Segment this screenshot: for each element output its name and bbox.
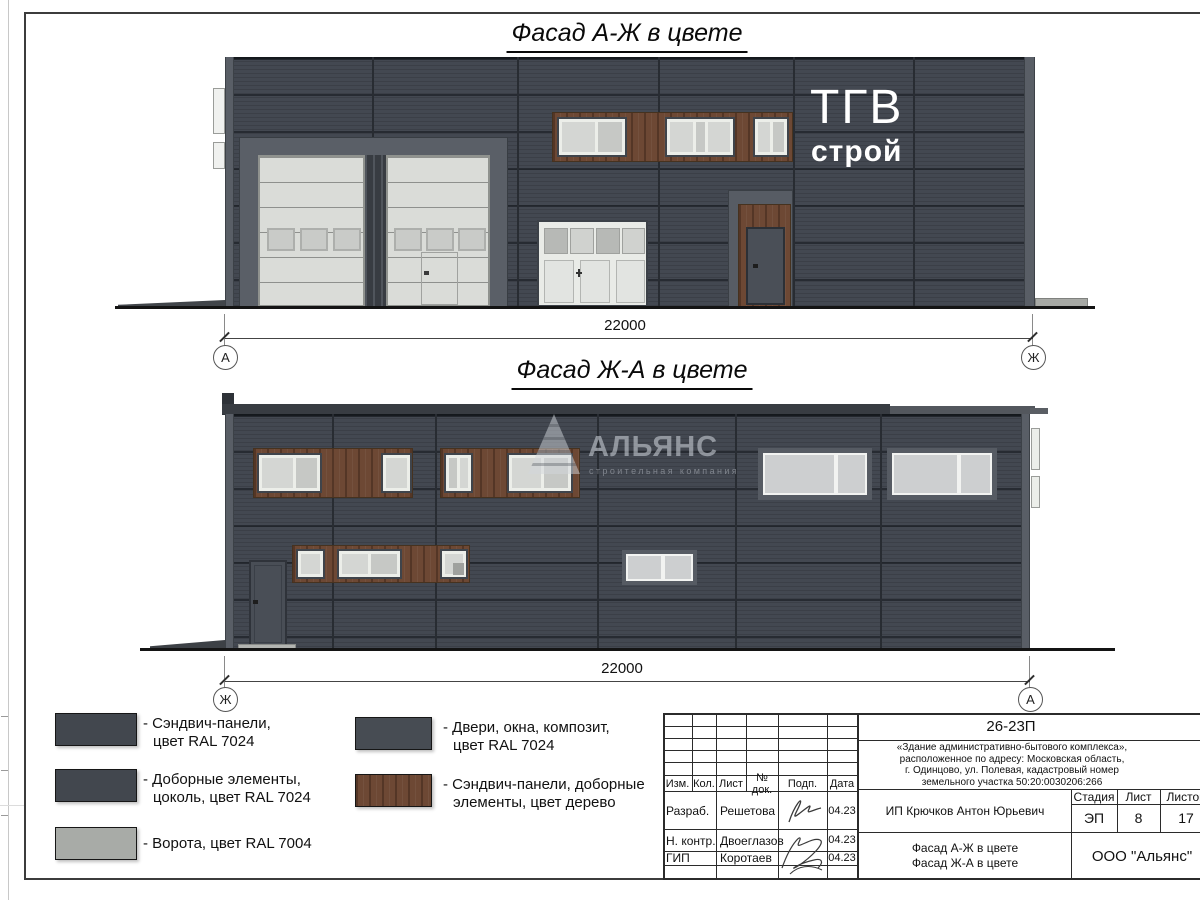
gate-window [394, 228, 422, 251]
legend-swatch-doors [355, 717, 432, 750]
col-header-kol: Кол. [692, 777, 716, 790]
parapet-cap-dark [222, 404, 890, 414]
row-role: Разраб. [666, 804, 709, 818]
panel-seam [880, 414, 882, 650]
titleblock-line [663, 750, 857, 751]
gate-wicket-door [421, 252, 458, 305]
window [665, 117, 735, 157]
legend-label: - Сэндвич-панели, цвет RAL 7024 [143, 715, 271, 751]
margin-divider [0, 805, 24, 806]
dimension-label: 22000 [601, 660, 643, 677]
titleblock-line [663, 762, 857, 763]
legend-swatch-gates [55, 827, 137, 860]
col-header-podp: Подп. [778, 777, 827, 790]
door-handle [253, 600, 258, 604]
axis-bubble-left: А [213, 345, 238, 370]
storefront-pane [616, 260, 645, 303]
window [557, 117, 627, 157]
gate-window [267, 228, 295, 251]
legend-line: цоколь, цвет RAL 7024 [143, 789, 311, 807]
gate-window [300, 228, 328, 251]
window [440, 549, 468, 579]
drawing-title-line: Фасад Ж-А в цвете [912, 856, 1018, 871]
sectional-gate-right [386, 155, 490, 307]
watermark-company: АЛЬЯНС [588, 431, 718, 464]
legend-swatch-sandwich [55, 713, 137, 746]
panel-seam [435, 414, 437, 650]
glass-pane [562, 122, 595, 152]
facade1-left-corner-trim [225, 57, 234, 307]
gate-door-handle [424, 271, 429, 275]
col-header-izm: Изм. [663, 777, 692, 790]
legend-line: элементы, цвет дерево [443, 794, 645, 812]
legend-line: - Доборные элементы, [143, 771, 311, 789]
row-role: ГИП [666, 851, 690, 865]
legend-label: - Ворота, цвет RAL 7004 [143, 835, 312, 853]
description-line: «Здание административно-бытового комплек… [897, 742, 1127, 754]
glass-pane [342, 554, 368, 574]
window [257, 453, 322, 493]
col-header-list: Лист [716, 777, 746, 790]
glass-pane [773, 122, 785, 152]
client-name: ИП Крючков Антон Юрьевич [859, 789, 1071, 832]
storefront-pane [544, 260, 574, 303]
description-line: земельного участка 50:20:0030206:266 [922, 777, 1103, 789]
col-header-data: Дата [827, 777, 857, 790]
window [753, 117, 789, 157]
glass-pane [460, 458, 468, 488]
facade2-right-corner-trim [1021, 414, 1030, 650]
building-logo-line1: ТГВ [810, 84, 903, 132]
axis-bubble-left: Ж [213, 687, 238, 712]
row-role: Н. контр. [666, 834, 716, 848]
ground-line [115, 306, 1095, 309]
row-date: 04.23 [827, 851, 857, 864]
downspout-box [1031, 476, 1040, 508]
row-name: Двоеглазов [720, 834, 784, 848]
stage-label: Стадия [1071, 790, 1117, 803]
window [444, 453, 473, 493]
glass-pane [838, 455, 865, 493]
panel-seam [658, 57, 660, 307]
downspout-box [213, 142, 225, 169]
stage-value: ЭП [1071, 805, 1117, 831]
facade2-door [249, 560, 287, 648]
window [296, 549, 325, 579]
legend-label: - Доборные элементы, цоколь, цвет RAL 70… [143, 771, 311, 807]
signature-reshetova [781, 794, 827, 828]
margin-tick [1, 770, 8, 771]
panel-seam [735, 414, 737, 650]
transom-pane [596, 228, 620, 254]
row-name: Коротаев [720, 851, 772, 865]
legend-line: - Двери, окна, композит, [443, 719, 610, 737]
door-handle [578, 269, 580, 277]
glass-pane [670, 122, 693, 152]
facade2-left-corner-trim [225, 414, 234, 650]
glass-pane [765, 455, 834, 493]
margin-tick [1, 815, 8, 816]
transom-pane [622, 228, 645, 254]
glass-pane [758, 122, 770, 152]
vent-corner [453, 563, 464, 575]
drawing-title-line: Фасад А-Ж в цвете [912, 841, 1018, 856]
gate-window [333, 228, 361, 251]
dimension-line [225, 681, 1030, 682]
gate-window [426, 228, 454, 251]
legend-swatch-trim [55, 769, 137, 802]
row-date: 04.23 [827, 833, 857, 846]
drawing-title: Фасад А-Ж в цвете Фасад Ж-А в цвете [859, 834, 1071, 878]
glass-pane [449, 458, 457, 488]
glass-pane [296, 458, 317, 488]
door-panel-line [254, 565, 282, 643]
extension-line [224, 314, 225, 346]
downspout-box [213, 88, 225, 134]
window [622, 550, 697, 585]
legend-line: цвет RAL 7024 [443, 737, 610, 755]
sheet-label: Лист [1117, 790, 1160, 803]
dimension-line [225, 338, 1033, 339]
glass-pane [665, 556, 691, 579]
row-date: 04.23 [827, 804, 857, 817]
window [337, 549, 402, 579]
glass-pane [894, 455, 957, 493]
panel-seam [517, 57, 519, 307]
gate-center-post [365, 155, 386, 307]
legend-swatch-wood [355, 774, 432, 807]
axis-bubble-right: Ж [1021, 345, 1046, 370]
extension-line [1032, 314, 1033, 346]
titleblock-line [663, 726, 857, 727]
legend-line: - Сэндвич-панели, доборные [443, 776, 645, 794]
transom-pane [544, 228, 568, 254]
gate-window [458, 228, 486, 251]
panel-seam [793, 57, 795, 307]
dimension-label: 22000 [604, 317, 646, 334]
description-line: г. Одинцово, ул. Полевая, кадастровый но… [905, 765, 1119, 777]
glass-pane [598, 122, 622, 152]
glass-pane [301, 554, 320, 574]
sheet-left-margin-line [8, 0, 9, 900]
titleblock-line [857, 740, 1200, 741]
margin-tick [1, 716, 8, 717]
sheet-number: 8 [1117, 805, 1160, 831]
facade2-title: Фасад Ж-А в цвете [512, 356, 753, 390]
facade1-right-corner-trim [1024, 57, 1035, 307]
row-name: Решетова [720, 804, 775, 818]
storefront-door [580, 260, 610, 303]
window [381, 453, 412, 493]
description-line: расположенное по адресу: Московская обла… [900, 754, 1125, 766]
legend-line: - Сэндвич-панели, [143, 715, 271, 733]
panel-seam [913, 57, 915, 307]
sheets-total: 17 [1160, 805, 1200, 831]
glass-pane [961, 455, 990, 493]
sectional-gate-left [258, 155, 365, 307]
parapet-overhang [1030, 408, 1048, 414]
glass-pane [628, 556, 661, 579]
transom-pane [570, 228, 594, 254]
glass-pane [708, 122, 731, 152]
door-handle [753, 264, 758, 268]
facade1-title: Фасад А-Ж в цвете [507, 19, 748, 53]
extension-line [224, 656, 225, 688]
glass-pane [262, 458, 293, 488]
titleblock-line [663, 738, 857, 739]
glass-pane [386, 458, 407, 488]
extension-line [1029, 656, 1030, 688]
window [758, 448, 872, 500]
glass-pane [696, 122, 705, 152]
parapet-cap-light [890, 406, 1035, 414]
project-code: 26-23П [857, 714, 1165, 739]
watermark-tagline: строительная компания [589, 466, 739, 476]
legend-label: - Двери, окна, композит, цвет RAL 7024 [443, 719, 610, 755]
glass-pane [371, 554, 397, 574]
storefront-glazing [537, 220, 648, 307]
building-logo-line2: строй [811, 136, 902, 168]
window [887, 448, 997, 500]
downspout-box [1031, 428, 1040, 470]
legend-line: - Ворота, цвет RAL 7004 [143, 835, 312, 853]
sheets-label: Листов [1160, 790, 1200, 803]
entry-door [746, 227, 785, 305]
legend-label: - Сэндвич-панели, доборные элементы, цве… [443, 776, 645, 812]
ground-line [140, 648, 1115, 651]
col-header-ndok: № док. [746, 777, 778, 790]
company-name: ООО "Альянс" [1072, 832, 1200, 880]
legend-line: цвет RAL 7024 [143, 733, 271, 751]
project-description: «Здание административно-бытового комплек… [862, 742, 1162, 788]
axis-bubble-right: А [1018, 687, 1043, 712]
signature-kontrol-gip [776, 830, 830, 878]
